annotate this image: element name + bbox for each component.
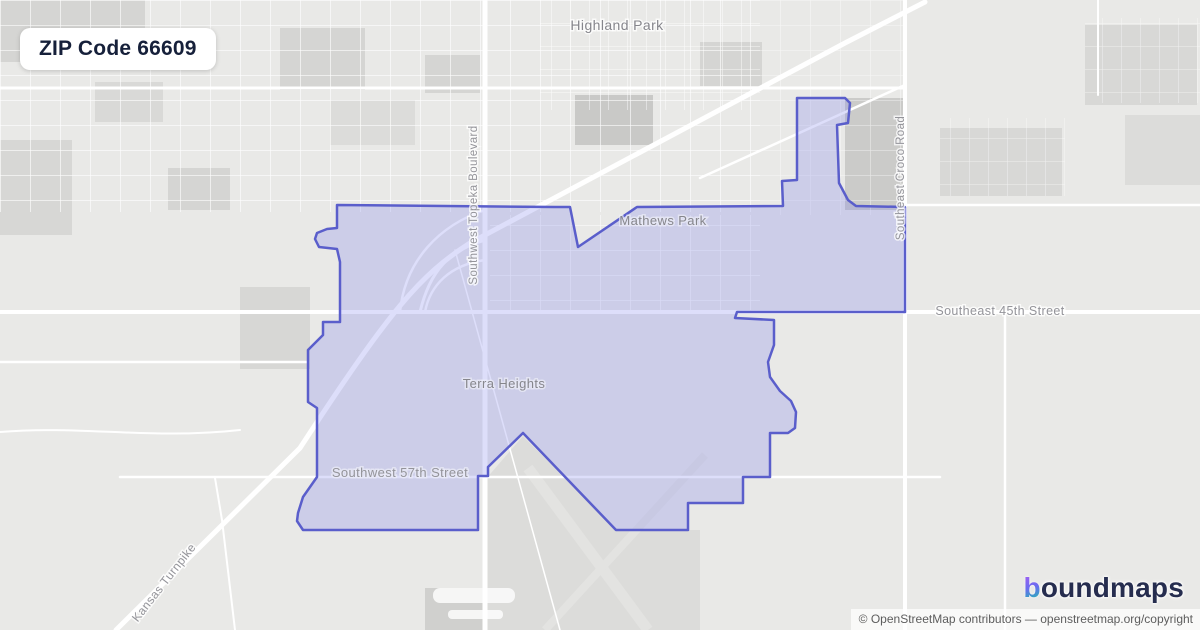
map-attribution[interactable]: © OpenStreetMap contributors — openstree…: [851, 609, 1200, 630]
label-topeka-boulevard: Southwest Topeka Boulevard: [468, 125, 480, 284]
label-mathews-park: Mathews Park: [619, 213, 706, 228]
label-45th-street: Southeast 45th Street: [935, 304, 1064, 318]
zip-code-badge: ZIP Code 66609: [20, 28, 216, 70]
map-svg: Highland Park Southwest Topeka Boulevard…: [0, 0, 1200, 630]
boundmaps-logo-text: oundmaps: [1041, 572, 1184, 604]
label-croco-road: Southeast Croco Road: [895, 116, 907, 240]
boundmaps-logo-mark: b: [1024, 572, 1041, 604]
label-terra-heights: Terra Heights: [463, 376, 546, 391]
label-highland-park: Highland Park: [570, 17, 664, 33]
attribution-text[interactable]: © OpenStreetMap contributors — openstree…: [859, 612, 1193, 626]
label-57th-street: Southwest 57th Street: [332, 465, 468, 480]
zip-code-badge-title: ZIP Code 66609: [39, 37, 197, 60]
map-canvas[interactable]: Highland Park Southwest Topeka Boulevard…: [0, 0, 1200, 630]
boundmaps-logo[interactable]: boundmaps: [1024, 572, 1184, 604]
